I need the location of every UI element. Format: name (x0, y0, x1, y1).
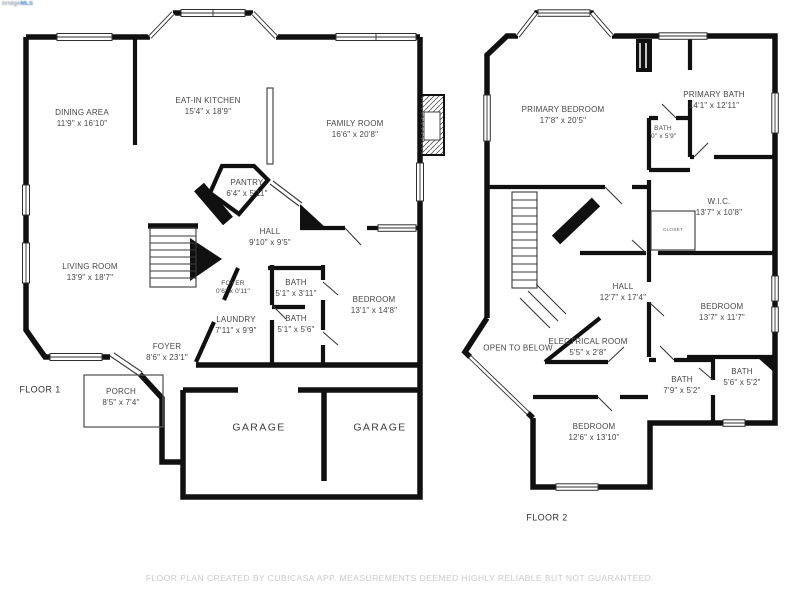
floorplan-canvas (0, 0, 800, 600)
floor1-title: FLOOR 1 (19, 384, 60, 397)
room-label-electrical: ELECTRICAL ROOM5'5" x 2'8" (548, 336, 627, 358)
room-label-primary-bedroom: PRIMARY BEDROOM17'8" x 20'5" (522, 104, 605, 126)
shower-fixture (636, 39, 652, 72)
room-label-foyer-small: FOYER0'6" x 0'11" (216, 280, 250, 296)
room-label-porch: PORCH8'5" x 7'4" (102, 386, 139, 408)
room-label-pantry: PANTRY6'4" x 5'11" (226, 177, 267, 199)
room-label-bedroom2: BEDROOM13'7" x 11'7" (699, 301, 745, 323)
room-label-bath1b: BATH5'1" x 5'6" (277, 313, 314, 335)
stairs-floor2 (512, 192, 596, 328)
mls-watermark-logo: bridgeMLS (2, 1, 33, 7)
windows-floor2 (469, 10, 779, 491)
room-label-hall2: HALL12'7" x 17'4" (600, 281, 646, 303)
kitchen-counter (267, 88, 273, 164)
room-label-hall1: HALL9'10" x 9'5" (249, 226, 291, 248)
room-label-bath1a: BATH5'1" x 3'11" (275, 277, 316, 299)
stairs-floor1 (150, 228, 196, 287)
room-label-open-to-below: OPEN TO BELOW (483, 342, 552, 353)
floor2-plan (465, 10, 778, 491)
room-label-bedroom3: BEDROOM12'6" x 13'10" (568, 421, 619, 443)
floor2-title: FLOOR 2 (526, 512, 567, 525)
room-label-bath2d: BATH5'6" x 5'2" (723, 366, 760, 388)
room-label-dining: DINING AREA11'9" x 16'10" (55, 107, 109, 129)
room-label-foyer: FOYER8'6" x 23'1" (146, 341, 188, 363)
floorplan-page: DINING AREA11'9" x 16'10" EAT-IN KITCHEN… (0, 0, 800, 600)
room-label-bath2c: BATH7'9" x 5'2" (663, 374, 700, 396)
room-label-living: LIVING ROOM13'9" x 18'7" (62, 261, 118, 283)
room-label-family: FAMILY ROOM16'6" x 20'8" (326, 118, 383, 140)
footer-disclaimer: FLOOR PLAN CREATED BY CUBICASA APP. MEAS… (146, 573, 654, 583)
room-label-kitchen: EAT-IN KITCHEN15'4" x 18'9" (175, 95, 240, 117)
room-label-primary-bath: PRIMARY BATH14'1" x 12'11" (683, 89, 745, 111)
room-label-bath-small: BATH'0" x 5'9" (650, 125, 677, 141)
fireplace (420, 95, 444, 155)
room-label-garage-right: GARAGE (353, 421, 406, 436)
front-door (110, 353, 142, 375)
room-label-bedroom1: BEDROOM13'1" x 14'8" (351, 294, 397, 316)
room-label-laundry: LAUNDRY7'11" x 9'9" (215, 314, 256, 336)
room-label-garage-left: GARAGE (232, 421, 285, 436)
room-label-closet: CLOSET (663, 227, 683, 233)
room-label-wic: W.I.C.13'7" x 10'8" (696, 196, 742, 218)
